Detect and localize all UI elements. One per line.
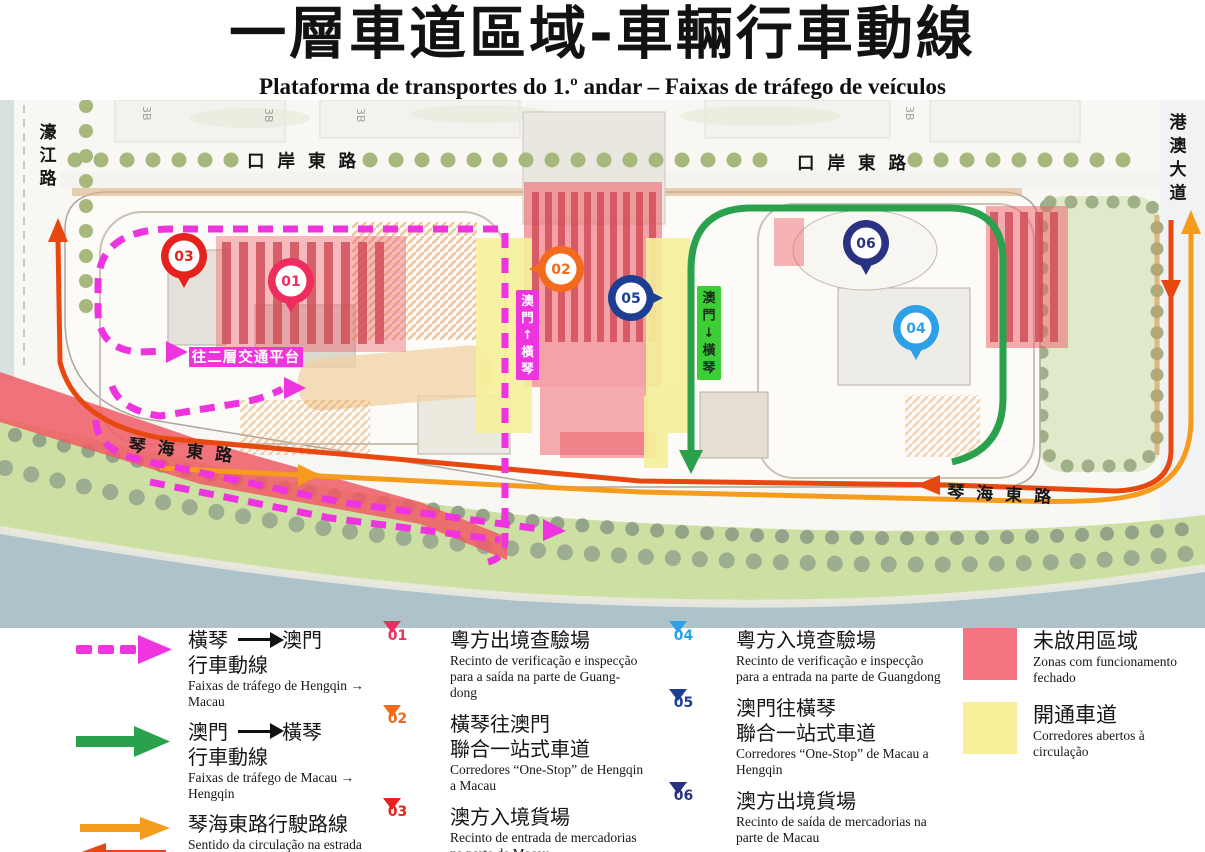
- corridor-label-magenta: 澳門↑橫琴: [516, 290, 539, 380]
- svg-text:05: 05: [621, 291, 640, 307]
- legend-route-hengqin-macau: 橫琴澳門 行車動線 Faixas de tráfego de Hengqin →…: [76, 628, 388, 710]
- svg-text:澳門↓橫琴: 澳門↓橫琴: [702, 290, 716, 376]
- svg-text:往二層交通平台: 往二層交通平台: [192, 348, 301, 366]
- page-title: 一層車道區域-車輛行車動線: [0, 2, 1205, 68]
- poster: 一層車道區域-車輛行車動線 Plataforma de transportes …: [0, 0, 1205, 852]
- svg-text:01: 01: [281, 274, 300, 290]
- legend-route-macau-hengqin: 澳門橫琴 行車動線 Faixas de tráfego de Macau → H…: [76, 720, 388, 802]
- left-river: [0, 100, 14, 380]
- magenta-dashed-arrow-icon: [76, 628, 176, 671]
- legend-point-06: 06 澳方出境貨場Recinto de saída de mercadorias…: [678, 789, 962, 846]
- svg-text:澳門↑橫琴: 澳門↑橫琴: [520, 293, 534, 376]
- svg-text:3B: 3B: [903, 106, 916, 121]
- legend-zones: 未啟用區域Zonas com funcionamento fechado 開通車…: [963, 628, 1203, 776]
- legend-zone-closed: 未啟用區域Zonas com funcionamento fechado: [963, 628, 1203, 686]
- road-label-kouan-east-1: 口岸東路: [247, 151, 369, 172]
- legend-point-04: 04 粵方入境查驗場Recinto de verificação e inspe…: [678, 628, 962, 685]
- legend-routes: 橫琴澳門 行車動線 Faixas de tráfego de Hengqin →…: [76, 628, 388, 852]
- legend-point-01: 01 粵方出境查驗場Recinto de verificação e inspe…: [392, 628, 675, 701]
- orange-double-arrow-icon: [76, 812, 176, 852]
- svg-text:3B: 3B: [354, 108, 367, 123]
- legend-points-left: 01 粵方出境查驗場Recinto de verificação e inspe…: [392, 628, 675, 852]
- to-level2-label: 往二層交通平台: [189, 347, 303, 367]
- site-map: 往二層交通平台 澳門↑橫琴 澳門↓橫琴 濠江路 口岸東路 口岸東路 港澳大道 琴…: [0, 100, 1205, 628]
- svg-text:02: 02: [551, 262, 570, 278]
- svg-text:3B: 3B: [262, 108, 275, 123]
- legend-zone-open: 開通車道Corredores abertos à circulação: [963, 702, 1203, 760]
- corridor-label-green: 澳門↓橫琴: [697, 286, 721, 380]
- road-label-haojiang: 濠江路: [40, 122, 58, 189]
- svg-text:06: 06: [856, 236, 875, 252]
- open-lane-swatch: [963, 702, 1017, 754]
- legend-point-02: 02 橫琴往澳門 聯合一站式車道Corredores “One-Stop” de…: [392, 712, 675, 794]
- svg-text:04: 04: [906, 321, 926, 337]
- green-arrow-icon: [76, 720, 176, 763]
- arrow-right-icon: [238, 638, 272, 641]
- legend-point-05: 05 澳門往橫琴 聯合一站式車道Corredores “One-Stop” de…: [678, 696, 962, 778]
- svg-text:3B: 3B: [140, 106, 153, 121]
- legend: 橫琴澳門 行車動線 Faixas de tráfego de Hengqin →…: [0, 628, 1205, 852]
- page-subtitle: Plataforma de transportes do 1.º andar –…: [0, 74, 1205, 100]
- legend-points-right: 04 粵方入境查驗場Recinto de verificação e inspe…: [678, 628, 962, 852]
- road-label-kouan-east-2: 口岸東路: [797, 153, 919, 174]
- svg-text:03: 03: [174, 249, 193, 265]
- arrow-right-icon: [238, 730, 272, 733]
- legend-route-qinhai: 琴海東路行駛路線 Sentido da circulação na estrad…: [76, 812, 388, 852]
- closed-zone-swatch: [963, 628, 1017, 680]
- legend-point-03: 03 澳方入境貨場Recinto de entrada de mercadori…: [392, 805, 675, 852]
